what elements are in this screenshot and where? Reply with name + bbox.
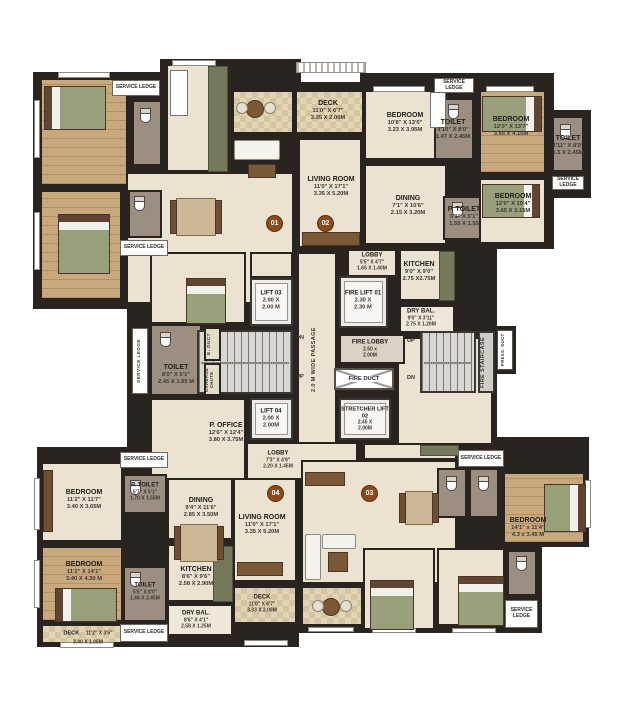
window bbox=[34, 100, 40, 158]
service-ledge-label: SERVICE LEDGE bbox=[137, 339, 143, 383]
unit-marker-01: 01 bbox=[266, 215, 283, 232]
window bbox=[58, 72, 110, 78]
toilet-wc bbox=[446, 476, 457, 491]
service-ledge: SERVICE LEDGE bbox=[120, 240, 168, 256]
label-dining-04: DINING 9'4" X 11'6" 2.85 X 3.50M bbox=[184, 497, 218, 519]
dining-bench bbox=[170, 200, 177, 234]
dining-bench bbox=[217, 526, 224, 560]
label-toilet-04: TOILET 5'5" X 8'0" 1.66 X 2.45M bbox=[126, 582, 164, 601]
label-bedroom-04b: BEDROOM 11'2" X 14'1" 3.40 X 4.30 M bbox=[66, 561, 103, 583]
service-ledge: SERVICE LEDGE bbox=[458, 450, 504, 467]
fire-staircase-label: FIRE STAIRCASE bbox=[480, 333, 486, 391]
tv-console bbox=[237, 562, 283, 576]
stair-up-label: UP bbox=[407, 338, 415, 344]
stair-up-label: UP bbox=[296, 374, 304, 380]
toilet-wc bbox=[516, 556, 527, 571]
label-lobby-04: LOBBY 7'3" X 4'9" 2.20 X 1.45M bbox=[263, 450, 293, 469]
window bbox=[244, 640, 288, 646]
window bbox=[452, 628, 496, 633]
fire-staircase bbox=[420, 331, 476, 393]
deck-table bbox=[246, 100, 264, 118]
toilet-wc bbox=[140, 108, 151, 123]
label-bedroom-04a: BEDROOM 11'2" X 11'7" 3.40 X 3.65M bbox=[66, 489, 103, 511]
label-lift-03: LIFT 03 2.00 X 2.00 M bbox=[260, 290, 281, 311]
label-bedroom-03a: BEDROOM 14'1" x 11'4" 4.3 x 3.45 M bbox=[510, 517, 547, 539]
label-deck-top: DECK 11'0" X 6'7" 3.35 X 2.00M bbox=[311, 100, 345, 122]
label-bedroom-02a: BEDROOM 10'8" X 13'0" 3.23 X 3.95M bbox=[387, 112, 424, 134]
label-kitchen-04: KITCHEN 8'6" X 9'6" 2.58 X 2.90M bbox=[179, 566, 213, 588]
bed bbox=[44, 86, 106, 130]
label-stretcher-lift-02: STRETCHER LIFT 02 2.45 X 2.00M bbox=[340, 406, 390, 431]
sofa bbox=[305, 534, 321, 580]
dining-bench bbox=[432, 493, 439, 523]
coffee-table bbox=[248, 164, 276, 178]
tv-console bbox=[302, 232, 360, 246]
label-fire-lobby: FIRE LOBBY 2.50 x 2.00M bbox=[352, 339, 388, 358]
kitchen-appliance bbox=[170, 70, 188, 116]
label-lobby-top: LOBBY 5'5" X 4'7" 1.65 X 1.40M bbox=[357, 252, 387, 271]
label-bedroom-02c: BEDROOM 12'0" X 10'4" 3.65 X 3.15M bbox=[495, 193, 532, 215]
toilet-wc bbox=[134, 196, 145, 211]
press-duct-label: PRESS. DUCT bbox=[500, 332, 505, 368]
label-drybal-02: DRY BAL. 9'0" X 3'11" 2.75 X 1.20M bbox=[406, 308, 436, 327]
deck-chair bbox=[236, 102, 248, 114]
label-fire-lift-01: FIRE LIFT 01 2.30 X 2.30 M bbox=[345, 290, 381, 311]
window bbox=[308, 627, 354, 632]
toilet-wc bbox=[478, 476, 489, 491]
label-living-04: LIVING ROOM 11'0" X 17'1" 3.35 X 5.20M bbox=[238, 514, 285, 536]
stair-dn-label: DN bbox=[296, 335, 304, 341]
deck-chair bbox=[312, 600, 324, 612]
label-ptoilet-02: P. TOILET 5'1" X 5'1" 1.55 X 1.55 bbox=[448, 206, 480, 228]
service-ledge: SERVICE LEDGE bbox=[120, 452, 168, 468]
dining-table bbox=[176, 198, 216, 236]
bed bbox=[55, 588, 117, 622]
stair-dn-label: DN bbox=[407, 375, 415, 381]
dining-bench bbox=[215, 200, 222, 234]
service-ledge: SERVICE LEDGE bbox=[112, 80, 160, 96]
dining-table bbox=[180, 524, 218, 562]
window bbox=[34, 478, 40, 530]
coffee-table bbox=[328, 552, 348, 572]
label-deck-03: DECK 11'0" X 6'7" 3.33 X 2.00M bbox=[247, 594, 277, 613]
label-lift-04: LIFT 04 2.00 X 2.00M bbox=[260, 408, 281, 429]
room-passage bbox=[297, 252, 337, 448]
label-poffice: P. OFFICE 12'6" X 12'4" 3.80 X 3.75M bbox=[209, 422, 244, 444]
footprint-notch bbox=[30, 56, 160, 72]
label-deck-04: DECK 11'2" X 3'5" 3.40 X 1.05M bbox=[63, 620, 112, 645]
wall-deck-divider bbox=[292, 88, 297, 136]
service-ledge: SERVICE LEDGE bbox=[434, 78, 474, 93]
service-ledge-vertical: SERVICE LEDGE bbox=[132, 328, 148, 394]
wardrobe bbox=[43, 470, 53, 532]
unit-marker-02: 02 bbox=[317, 215, 334, 232]
tv-console bbox=[305, 472, 345, 486]
floor-plan: FIRE DUCT bbox=[0, 0, 620, 706]
dining-table bbox=[405, 491, 433, 525]
bed bbox=[186, 278, 226, 324]
service-ledge: SERVICE LEDGE bbox=[505, 600, 538, 628]
bed bbox=[370, 580, 414, 630]
window bbox=[486, 86, 534, 92]
sofa bbox=[234, 140, 280, 160]
service-ledge: SERVICE LEDGE bbox=[552, 176, 584, 190]
bed bbox=[58, 214, 110, 274]
window bbox=[373, 86, 425, 92]
railing-hatch bbox=[296, 62, 366, 73]
label-dining-02: DINING 7'1" X 10'6" 2.15 X 3.20M bbox=[391, 195, 425, 217]
deck-table bbox=[322, 598, 340, 616]
label-toilet-02a: TOILET 4'10" X 8'0" 1.47 X 2.45M bbox=[435, 119, 471, 141]
dining-bench bbox=[174, 526, 181, 560]
window bbox=[34, 560, 40, 608]
label-living-02: LIVING ROOM 11'0" X 17'1" 3.35 X 5.20M bbox=[307, 176, 354, 198]
dining-bench bbox=[399, 493, 406, 523]
unit-marker-04: 04 bbox=[267, 485, 284, 502]
label-drybal-04: DRY BAL. 8'6" X 4'1" 2.58 X 1.25M bbox=[181, 610, 211, 629]
educt-label: E. DUCT bbox=[207, 329, 212, 359]
window bbox=[34, 212, 40, 270]
toilet-wc bbox=[448, 104, 459, 119]
toilet-wc bbox=[160, 332, 171, 347]
kitchen-counter bbox=[420, 445, 459, 456]
kitchen-counter bbox=[208, 66, 228, 172]
fire-duct-label: FIRE DUCT bbox=[347, 376, 382, 382]
deck-chair bbox=[264, 102, 276, 114]
service-ledge: SERVICE LEDGE bbox=[120, 624, 168, 642]
garbage-chute-label: GARBAGE CHUTE bbox=[204, 364, 214, 395]
label-toilet-mid: TOILET 8'0" X 5'1" 2.45 X 1.55 M bbox=[158, 364, 194, 386]
kitchen-counter bbox=[439, 251, 455, 301]
fire-duct: FIRE DUCT bbox=[334, 368, 394, 390]
label-ptoilet-04: P. TOILET 5'7" X 5'1" 1.70 X 1.55M bbox=[130, 482, 160, 501]
passage-label: 2.0 M WIDE PASSAGE bbox=[311, 300, 317, 420]
label-toilet-02b: TOILET 4'11" X 8'0" 1.5 X 2.45M bbox=[552, 135, 584, 157]
bed bbox=[458, 576, 504, 626]
room-lift3-hall bbox=[250, 252, 293, 278]
unit-marker-03: 03 bbox=[361, 485, 378, 502]
sofa bbox=[322, 534, 356, 549]
deck-chair bbox=[340, 600, 352, 612]
bed bbox=[544, 484, 586, 532]
label-kitchen-02: KITCHEN 9'0" X 9'0" 2.75 X2.75M bbox=[403, 261, 436, 283]
label-bedroom-02b: BEDROOM 12'0" X 13'7" 3.65 X 4.15M bbox=[493, 116, 530, 138]
